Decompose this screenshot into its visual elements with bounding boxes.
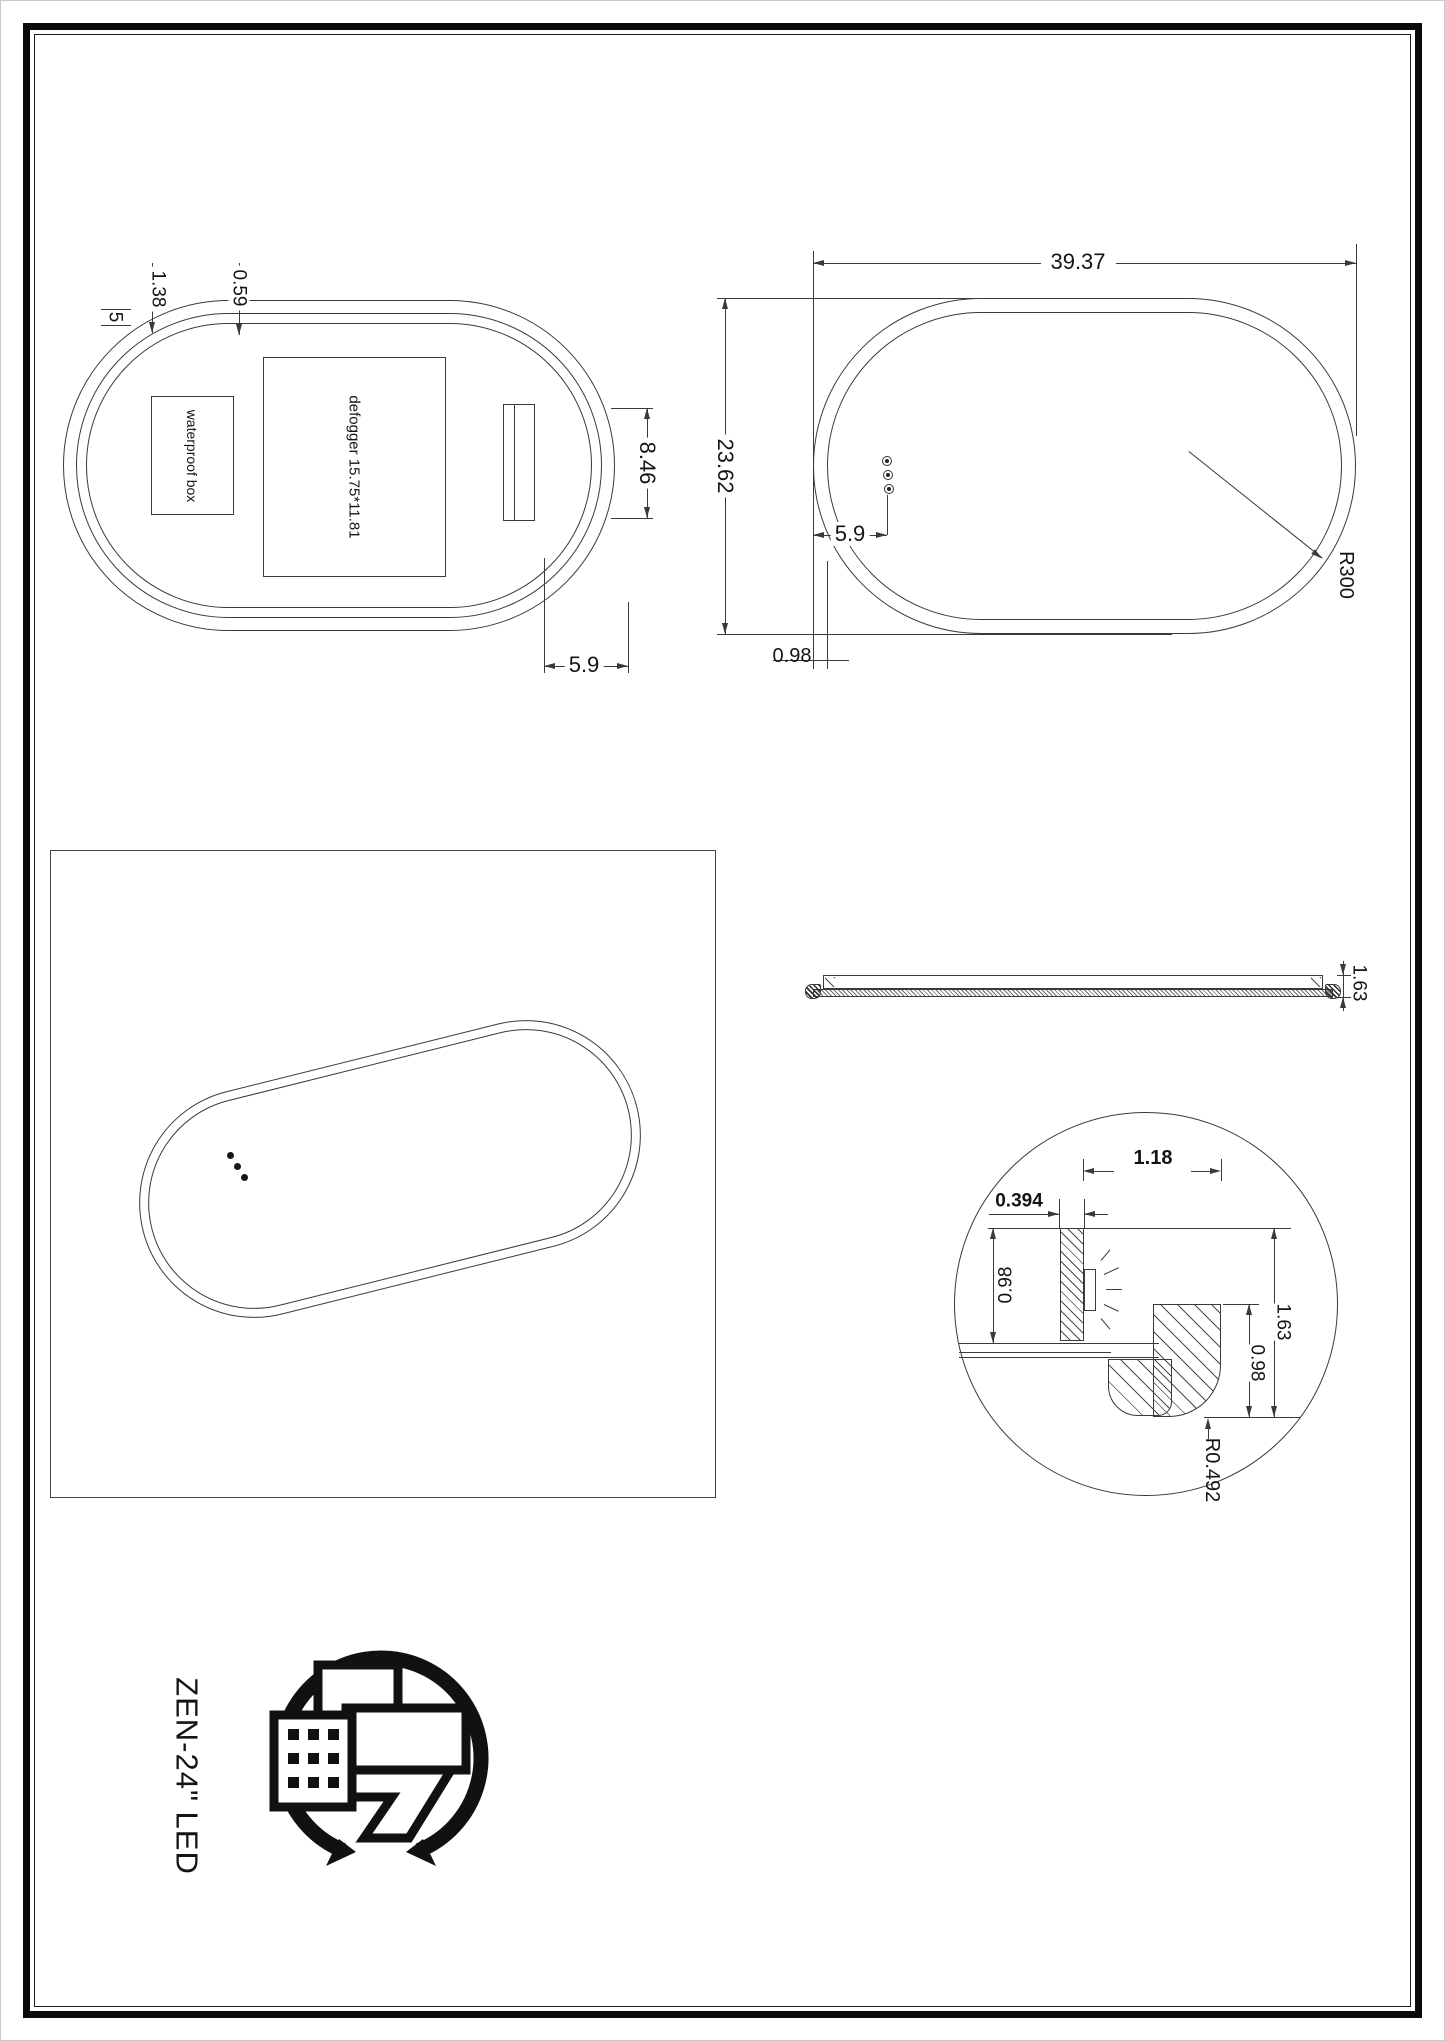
arrowhead <box>990 1332 996 1343</box>
dim-front-frame-width: 0.98 <box>773 646 812 666</box>
arrowhead <box>644 408 650 419</box>
extension-line <box>717 634 1172 635</box>
sensor-dot-icon <box>241 1174 248 1181</box>
extension-line <box>1223 1304 1259 1305</box>
dimension-line <box>1116 263 1356 264</box>
driver-bracket-divider <box>514 404 515 521</box>
arrowhead <box>1340 964 1346 975</box>
sensor-dot-icon <box>227 1152 234 1159</box>
extension-line <box>827 561 828 669</box>
arrowhead <box>1048 1211 1059 1217</box>
extension-line <box>1356 244 1357 436</box>
product-name: ZEN-24" LED <box>172 1677 203 1875</box>
detail-led-housing <box>1060 1228 1084 1341</box>
sensor-button-icon <box>882 456 892 466</box>
dim-detail-led-offset: 1.18 <box>1134 1148 1173 1168</box>
sensor-button-icon <box>884 484 894 494</box>
extension-line <box>101 325 131 326</box>
arrowhead <box>617 663 628 669</box>
dim-rear-corner-offset: 5.9 <box>565 653 604 677</box>
arrowhead <box>722 298 728 309</box>
glass-line <box>959 1352 1111 1353</box>
arrowhead <box>1271 1406 1277 1417</box>
extension-line <box>717 298 1172 299</box>
dim-rear-flange: 1.38 <box>148 267 169 312</box>
arrowhead <box>1246 1406 1252 1417</box>
arrowhead <box>1210 1168 1221 1174</box>
dim-front-height: 23.62 <box>713 434 737 497</box>
extension-line <box>1221 1159 1222 1181</box>
arrowhead <box>1271 1228 1277 1239</box>
arrowhead <box>813 532 824 538</box>
dim-rear-inner-offset: 0.59 <box>229 266 250 311</box>
extension-line <box>611 518 653 519</box>
extension-line <box>628 602 629 673</box>
arrowhead <box>813 260 824 266</box>
arrowhead <box>544 663 555 669</box>
dim-detail-frame-height: 0.98 <box>1248 1345 1267 1382</box>
dim-detail-wall-height: 0.98 <box>997 1267 1016 1304</box>
front-outline-inner <box>827 312 1342 620</box>
side-led-strip <box>813 989 1333 997</box>
arrowhead <box>990 1228 996 1239</box>
side-end-hatch <box>1311 977 1321 987</box>
dim-rear-bracket-height: 8.46 <box>635 438 659 489</box>
arrowhead <box>236 324 242 335</box>
extension-line <box>887 495 888 535</box>
dim-rear-edge-gap: 5 <box>106 312 125 323</box>
dim-detail-led-width: 0.394 <box>995 1192 1043 1211</box>
dimension-line <box>1191 1171 1211 1172</box>
extension-line <box>544 558 545 673</box>
side-end-hatch <box>825 977 835 987</box>
arrowhead <box>149 322 155 333</box>
led-ray-icon <box>1106 1289 1122 1290</box>
dim-front-corner-radius: R300 <box>1336 551 1356 599</box>
arrowhead <box>1083 1168 1094 1174</box>
dimension-line <box>993 1228 994 1343</box>
dim-detail-frame-depth: 1.63 <box>1274 1304 1293 1341</box>
dim-front-sensor-offset: 5.9 <box>831 522 870 546</box>
arrowhead <box>1340 997 1346 1008</box>
detail-led-chip <box>1084 1269 1096 1311</box>
sensor-dot-icon <box>234 1163 241 1170</box>
waterproof-box-label: waterproof box <box>185 410 199 503</box>
extension-line <box>1059 1199 1060 1228</box>
detail-frame-lip <box>1108 1359 1172 1416</box>
driver-bracket-rect <box>503 404 535 521</box>
side-frame-cap <box>805 984 821 999</box>
extension-line <box>988 1228 1291 1229</box>
sensor-button-icon <box>883 470 893 480</box>
arrowhead <box>1246 1304 1252 1315</box>
extension-line <box>813 251 814 669</box>
arrowhead <box>644 507 650 518</box>
dimension-line <box>1094 1171 1114 1172</box>
arrowhead <box>722 623 728 634</box>
dim-side-thickness: 1.63 <box>1350 965 1369 1002</box>
dim-detail-corner-radius: R0.492 <box>1202 1438 1222 1503</box>
dim-front-width: 39.37 <box>1046 250 1109 274</box>
side-glass-edge <box>823 975 1323 989</box>
arrowhead <box>1084 1211 1095 1217</box>
drawing-sheet: waterproof box defogger 15.75*11.81 5 1.… <box>0 0 1445 2041</box>
dimension-line <box>813 263 1041 264</box>
extension-line <box>101 309 131 310</box>
defogger-label: defogger 15.75*11.81 <box>347 395 362 538</box>
glass-line <box>959 1357 1159 1358</box>
glass-line <box>959 1343 1159 1344</box>
extension-line <box>1204 1417 1301 1418</box>
arrowhead <box>1345 260 1356 266</box>
brand-logo-icon <box>246 1623 516 1893</box>
arrowhead <box>876 532 887 538</box>
